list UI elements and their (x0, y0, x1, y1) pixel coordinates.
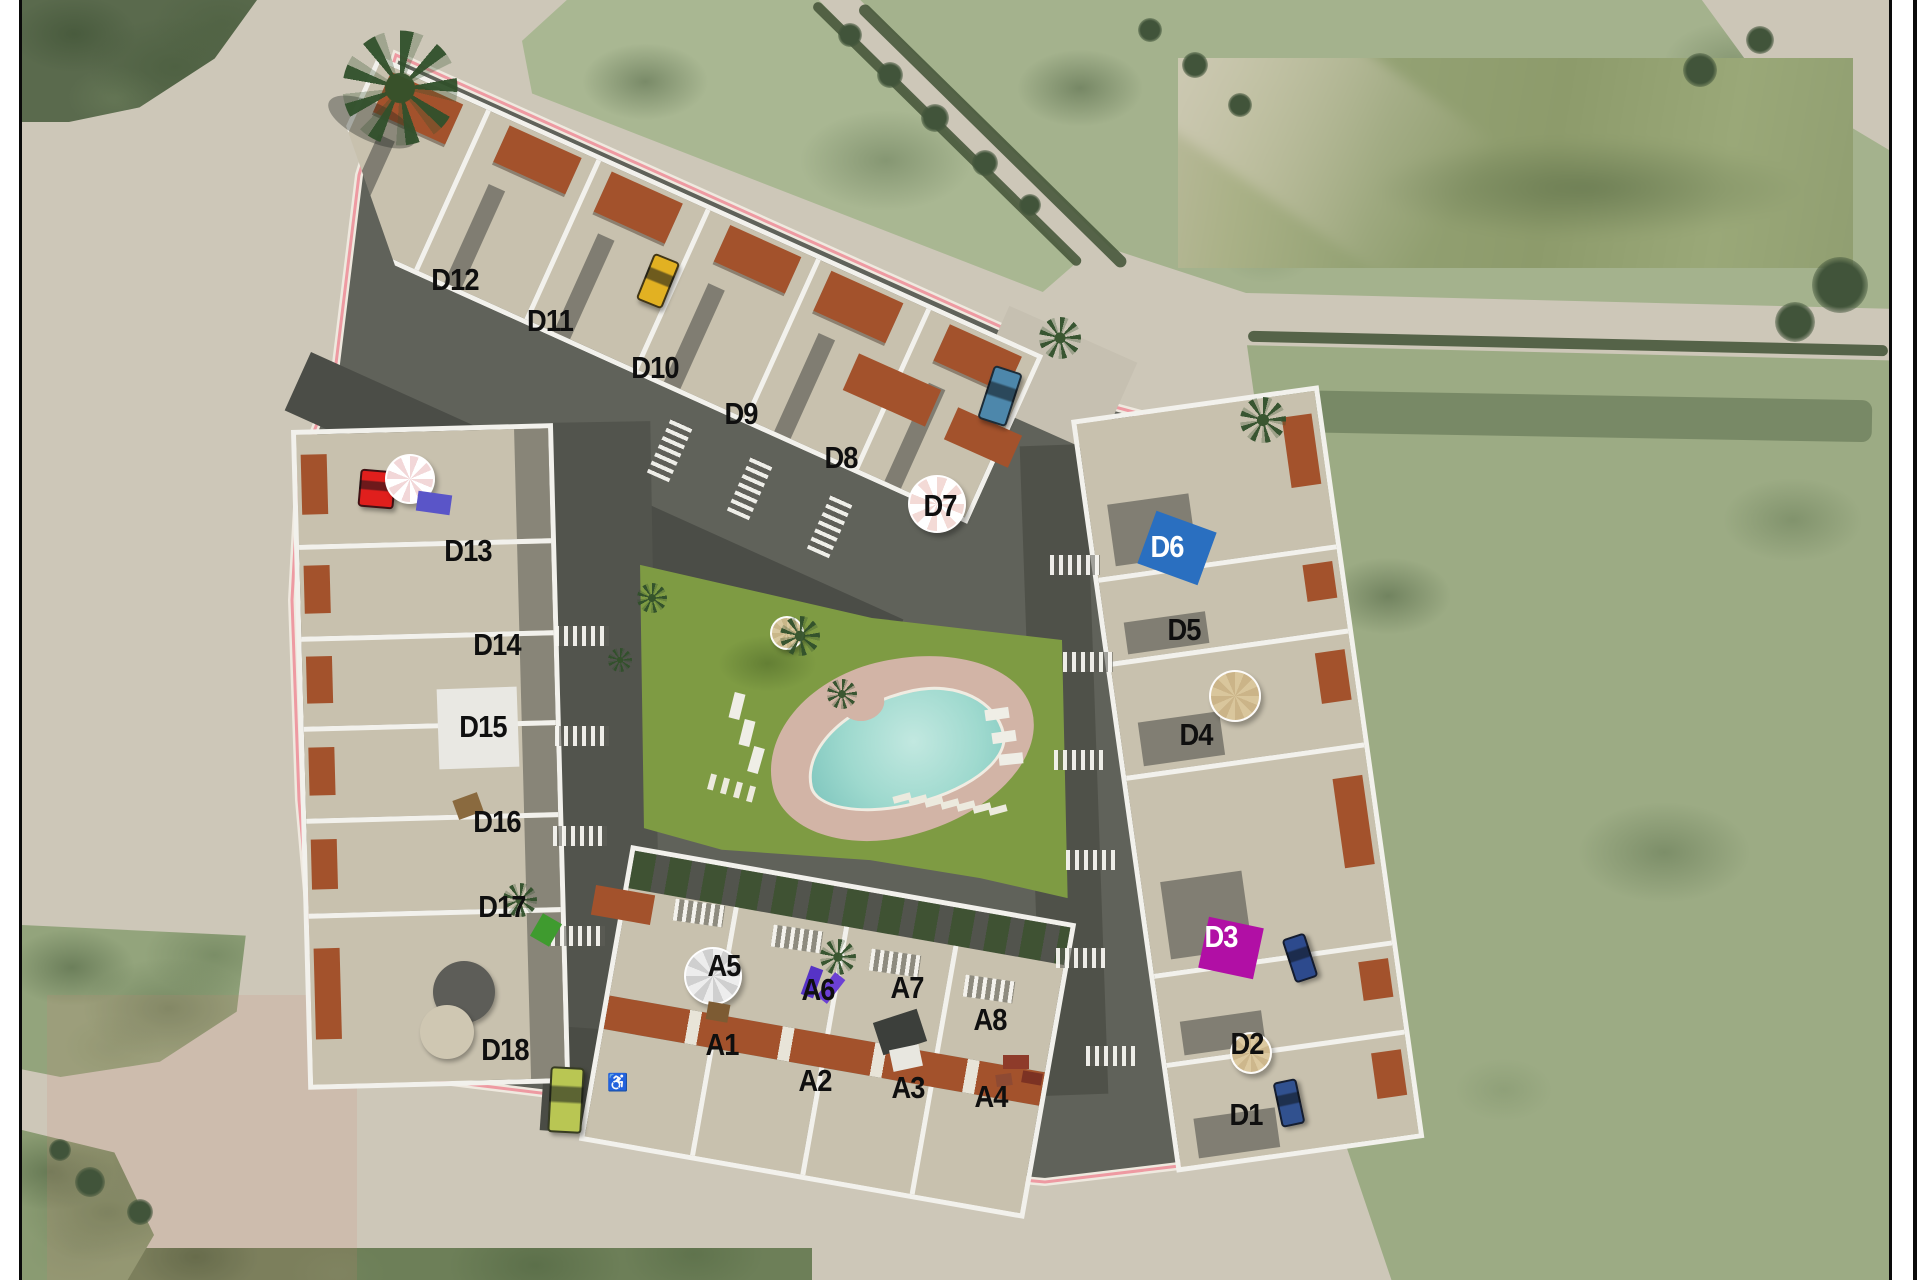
tree-corner-bl-2 (127, 1199, 153, 1225)
unit-label-d8: D8 (824, 440, 857, 476)
palm-lawn-1 (780, 616, 820, 656)
tree-road-1 (838, 23, 862, 47)
scanned-page: ♿ D12D11D10D9D8D7D6D5D4D3D2D1D13D14D15D1… (0, 0, 1920, 1280)
tree-road-8 (1228, 93, 1252, 117)
stairs-west-3 (553, 826, 607, 846)
unit-label-d9: D9 (724, 396, 757, 432)
palm-roundabout (1240, 397, 1286, 443)
palm-arow (820, 939, 856, 975)
umbrella-beige-d4 (1209, 670, 1261, 722)
furniture-brown-a1 (706, 1001, 731, 1023)
unit-label-d4: D4 (1179, 717, 1212, 753)
unit-label-d6: D6 (1150, 529, 1183, 565)
palm-lawn-4 (608, 648, 632, 672)
unit-label-d15: D15 (459, 709, 506, 745)
stairs-west-2 (555, 726, 609, 746)
tree-corner-bl-3 (49, 1139, 71, 1161)
unit-label-d1: D1 (1229, 1097, 1262, 1133)
unit-label-a2: A2 (798, 1063, 831, 1099)
unit-label-d18: D18 (481, 1032, 528, 1068)
palm-lawn-3 (637, 583, 667, 613)
unit-label-a5: A5 (707, 948, 740, 984)
furniture-red-a4-1 (1003, 1055, 1029, 1069)
tree-corner-tr-2 (1746, 26, 1774, 54)
palm-lawn-2 (827, 679, 857, 709)
page-edge-line (1913, 0, 1917, 1280)
tree-road-4 (972, 150, 998, 176)
unit-label-d17: D17 (478, 889, 525, 925)
tree-road-2 (877, 62, 903, 88)
unit-label-a3: A3 (891, 1070, 924, 1106)
unit-label-d12: D12 (431, 262, 478, 298)
tree-road-6 (1138, 18, 1162, 42)
stairs-east-3 (1054, 750, 1104, 770)
table-round-d18 (420, 1005, 474, 1059)
tree-road-5 (1019, 194, 1041, 216)
building-column-west (291, 423, 570, 1090)
van-lime (547, 1066, 584, 1134)
unit-label-a4: A4 (974, 1079, 1007, 1115)
tree-right-1 (1812, 257, 1868, 313)
stairs-east-4 (1066, 850, 1116, 870)
unit-label-d5: D5 (1167, 612, 1200, 648)
stairs-east-2 (1063, 652, 1113, 672)
tree-corner-tr-1 (1683, 53, 1717, 87)
aerial-photo: ♿ D12D11D10D9D8D7D6D5D4D3D2D1D13D14D15D1… (19, 0, 1892, 1280)
palm-northrow (1039, 317, 1081, 359)
tree-road-7 (1182, 52, 1208, 78)
tree-right-2 (1775, 302, 1815, 342)
palm-entry (343, 31, 458, 146)
unit-label-a7: A7 (890, 970, 923, 1006)
unit-label-a8: A8 (973, 1002, 1006, 1038)
stairs-west-1 (555, 626, 609, 646)
stairs-east-5 (1056, 948, 1106, 968)
unit-label-d11: D11 (527, 303, 573, 339)
unit-label-d14: D14 (473, 627, 520, 663)
unit-label-d10: D10 (631, 350, 678, 386)
unit-label-d3: D3 (1204, 919, 1237, 955)
accessible-parking-icon: ♿ (607, 1071, 629, 1093)
unit-label-a6: A6 (801, 972, 834, 1008)
tree-road-3 (921, 104, 949, 132)
unit-a1 (585, 1029, 709, 1155)
stairs-east-6 (1086, 1046, 1136, 1066)
unit-label-d2: D2 (1230, 1026, 1263, 1062)
unit-label-d7: D7 (923, 488, 956, 524)
unit-label-a1: A1 (705, 1027, 738, 1063)
unit-d14 (299, 538, 553, 637)
tree-corner-bl-1 (75, 1167, 105, 1197)
stairs-east-1 (1050, 555, 1100, 575)
unit-label-d13: D13 (444, 533, 491, 569)
unit-label-d16: D16 (473, 804, 520, 840)
